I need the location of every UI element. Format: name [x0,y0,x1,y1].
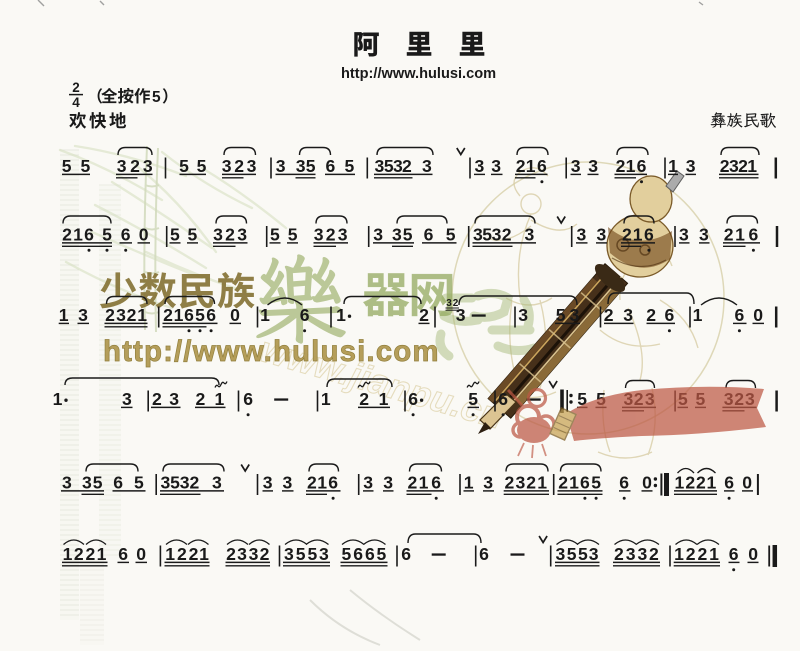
svg-text:3: 3 [314,225,324,245]
svg-text:6: 6 [326,156,336,176]
svg-text:2: 2 [177,544,187,564]
svg-text:5: 5 [342,544,352,564]
svg-text:1: 1 [707,473,717,493]
svg-text:1: 1 [199,544,209,564]
svg-text:1: 1 [63,544,73,564]
svg-text:1: 1 [165,544,175,564]
svg-text:2: 2 [604,305,614,325]
svg-text:5: 5 [170,473,180,493]
svg-text:6: 6 [300,305,310,325]
svg-text:3: 3 [117,156,127,176]
svg-text:6: 6 [121,225,131,245]
svg-text:0: 0 [742,473,752,493]
svg-text:1: 1 [317,473,327,493]
svg-text:3: 3 [588,156,598,176]
svg-text:2: 2 [359,389,369,409]
svg-text:5: 5 [134,473,144,493]
svg-text:2: 2 [130,156,140,176]
svg-text:6: 6 [365,544,375,564]
svg-text:6: 6 [424,225,434,245]
svg-text:3: 3 [491,156,501,176]
svg-text:3: 3 [422,156,432,176]
svg-text:0: 0 [753,305,763,325]
svg-text:2: 2 [225,225,235,245]
svg-text:1: 1 [675,473,685,493]
svg-text:2: 2 [502,225,512,245]
svg-text:6: 6 [735,305,745,325]
svg-text:6: 6 [84,225,94,245]
svg-text:2: 2 [408,473,418,493]
svg-text:3: 3 [556,544,566,564]
svg-text:3: 3 [296,156,306,176]
svg-text:3: 3 [169,389,179,409]
svg-text:3: 3 [446,298,452,309]
svg-text:1: 1 [674,544,684,564]
svg-text:3: 3 [78,305,88,325]
svg-text:6: 6 [328,473,338,493]
svg-text:6: 6 [619,473,629,493]
svg-text:5: 5 [288,225,298,245]
svg-text:5: 5 [296,544,306,564]
svg-text:3: 3 [237,225,247,245]
svg-text:3: 3 [62,473,72,493]
svg-text:1: 1 [215,389,225,409]
svg-text:5: 5 [308,544,318,564]
svg-text:2: 2 [105,305,115,325]
svg-text:2: 2 [402,156,412,176]
svg-text:6: 6 [353,544,363,564]
svg-text:2: 2 [724,225,734,245]
svg-text:2: 2 [163,305,173,325]
svg-text:1: 1 [537,473,547,493]
svg-text:3: 3 [525,225,535,245]
svg-text:3: 3 [143,156,153,176]
svg-text:2: 2 [558,473,568,493]
svg-text:2: 2 [616,156,626,176]
svg-text:http://www.hulusi.com: http://www.hulusi.com [341,66,496,82]
svg-text:5: 5 [188,225,198,245]
svg-text:3: 3 [638,544,648,564]
svg-text:5: 5 [345,156,355,176]
svg-text:1: 1 [735,225,745,245]
svg-text:3: 3 [180,473,190,493]
svg-text:1: 1 [174,305,184,325]
svg-text:2: 2 [419,305,429,325]
svg-text:1: 1 [633,225,643,245]
svg-text:6: 6 [537,156,547,176]
svg-text:5: 5 [62,156,72,176]
svg-text:3: 3 [699,225,709,245]
svg-text:5: 5 [306,156,316,176]
svg-text:6: 6 [729,544,739,564]
svg-text:2: 2 [234,156,244,176]
svg-text:1: 1 [321,389,331,409]
svg-text:3: 3 [122,389,132,409]
svg-text:5: 5 [195,305,205,325]
svg-text:6: 6 [498,389,508,409]
svg-text:6: 6 [206,305,216,325]
svg-text:3: 3 [212,473,222,493]
svg-text:3: 3 [626,544,636,564]
svg-text:1: 1 [336,305,346,325]
svg-text:3: 3 [483,473,493,493]
svg-text:3: 3 [284,544,294,564]
svg-text:5: 5 [446,225,456,245]
svg-text:3: 3 [679,225,689,245]
svg-text:1: 1 [709,544,719,564]
svg-text:2: 2 [622,225,632,245]
svg-text:3: 3 [363,473,373,493]
svg-text:2: 2 [62,225,72,245]
svg-text:2: 2 [505,473,515,493]
svg-text:5: 5 [403,225,413,245]
svg-text:6: 6 [479,544,489,564]
svg-text:3: 3 [213,225,223,245]
svg-text:2: 2 [74,544,84,564]
svg-text:3: 3 [338,225,348,245]
svg-text:1: 1 [464,473,474,493]
svg-text:6: 6 [665,305,675,325]
svg-text:1: 1 [260,305,270,325]
svg-text:5: 5 [102,225,112,245]
svg-text:2: 2 [260,544,270,564]
svg-text:2: 2 [516,156,526,176]
svg-text:1: 1 [59,305,69,325]
svg-text:3: 3 [383,473,393,493]
svg-text:6: 6 [724,473,734,493]
svg-text:2: 2 [226,544,236,564]
svg-text:3: 3 [571,156,581,176]
svg-text:6: 6 [580,473,590,493]
svg-text:1: 1 [668,156,678,176]
svg-text:3: 3 [249,544,259,564]
svg-text:1: 1 [73,225,83,245]
svg-text:3: 3 [492,225,502,245]
svg-text:1: 1 [97,544,107,564]
svg-text:5: 5 [179,156,189,176]
svg-text:3: 3 [319,544,329,564]
svg-text:0: 0 [139,225,149,245]
svg-text:5: 5 [152,89,161,106]
svg-text:1: 1 [626,156,636,176]
svg-text:3: 3 [686,156,696,176]
svg-text:1: 1 [569,473,579,493]
svg-text:5: 5 [468,389,478,409]
svg-text:5: 5 [567,544,577,564]
svg-text:3: 3 [518,305,528,325]
svg-text:5: 5 [81,156,91,176]
svg-text:6: 6 [408,389,418,409]
svg-text:0: 0 [230,305,240,325]
svg-text:1: 1 [693,305,703,325]
svg-text:3: 3 [222,156,232,176]
svg-text:6: 6 [401,544,411,564]
svg-text:3: 3 [82,473,92,493]
svg-text:3: 3 [597,225,607,245]
svg-text:5: 5 [591,473,601,493]
svg-text:1: 1 [137,305,147,325]
svg-text:1: 1 [379,389,389,409]
svg-text:3: 3 [276,156,286,176]
svg-text:3: 3 [589,544,599,564]
svg-text:6: 6 [118,544,128,564]
svg-text:1: 1 [526,156,536,176]
svg-text:2: 2 [190,473,200,493]
svg-text:2: 2 [152,389,162,409]
svg-text:2: 2 [196,389,206,409]
svg-text:1: 1 [53,389,63,409]
svg-text:3: 3 [283,473,293,493]
svg-text:3: 3 [456,305,466,325]
svg-text:5: 5 [270,225,280,245]
svg-text:5: 5 [170,225,180,245]
svg-text:5: 5 [93,473,103,493]
svg-text:3: 3 [475,156,485,176]
svg-text:3: 3 [247,156,257,176]
svg-text:0: 0 [642,473,652,493]
svg-text:5: 5 [377,544,387,564]
svg-text:2: 2 [72,80,80,95]
svg-text:3: 3 [116,305,126,325]
svg-text:1: 1 [747,156,757,176]
svg-text:6: 6 [243,389,253,409]
svg-text:0: 0 [136,544,146,564]
svg-text:1: 1 [419,473,429,493]
svg-text:6: 6 [431,473,441,493]
svg-text:6: 6 [644,225,654,245]
svg-text:2: 2 [189,544,199,564]
svg-text:http://www.hulusi.com: http://www.hulusi.com [103,335,440,368]
svg-text:2: 2 [646,305,656,325]
svg-text:6: 6 [184,305,194,325]
svg-text:3: 3 [373,225,383,245]
svg-text:2: 2 [326,225,336,245]
svg-text:2: 2 [86,544,96,564]
svg-text:3: 3 [516,473,526,493]
svg-text:2: 2 [614,544,624,564]
svg-text:2: 2 [686,544,696,564]
svg-text:6: 6 [113,473,123,493]
svg-text:2: 2 [526,473,536,493]
svg-text:3: 3 [623,305,633,325]
svg-text:6: 6 [749,225,759,245]
svg-text:2: 2 [649,544,659,564]
svg-text:0: 0 [748,544,758,564]
svg-text:3: 3 [577,225,587,245]
svg-text:5: 5 [556,305,566,325]
svg-text:5: 5 [578,544,588,564]
svg-text:2: 2 [685,473,695,493]
svg-text:3: 3 [263,473,273,493]
svg-text:6: 6 [637,156,647,176]
svg-text:2: 2 [698,544,708,564]
svg-text:3: 3 [392,225,402,245]
svg-text:5: 5 [197,156,207,176]
svg-text:2: 2 [696,473,706,493]
svg-text:2: 2 [307,473,317,493]
svg-text:4: 4 [72,95,80,110]
svg-text:3: 3 [237,544,247,564]
svg-text:3: 3 [570,305,580,325]
svg-text:3: 3 [161,473,171,493]
svg-text:2: 2 [127,305,137,325]
